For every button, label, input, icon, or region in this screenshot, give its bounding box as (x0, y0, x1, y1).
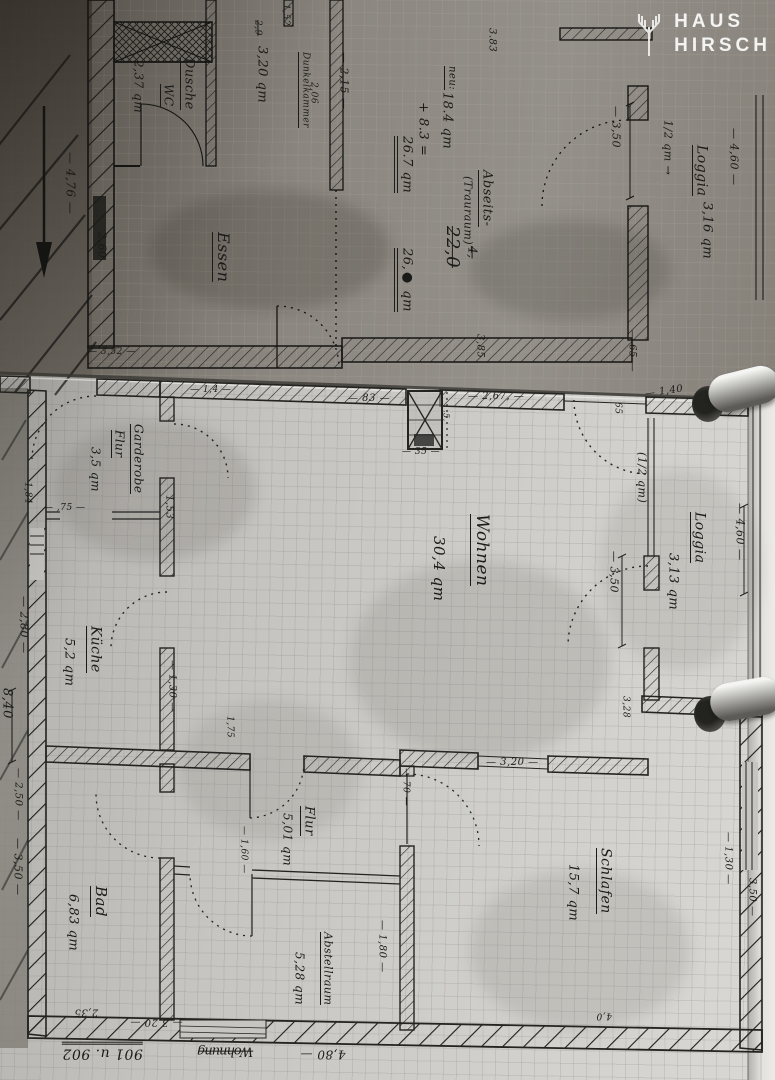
dim-label: — 70 — (400, 768, 409, 806)
dim-label: 3,28 (620, 696, 629, 718)
dim-label: — 3,50 (608, 551, 620, 593)
calc-value: + 8.3 = (416, 102, 430, 156)
calc-value: 18.4 qm (440, 92, 454, 149)
dim-label: — 3,50 (610, 106, 622, 148)
area-label-loggia-top: 3,16 qm (700, 202, 714, 259)
dim-label: — 1,80 — (376, 920, 387, 973)
ring-rod (704, 362, 775, 416)
calc-value-struck: 4, (466, 246, 479, 258)
area-label-bad: 6,83 qm (66, 894, 80, 951)
top-sheet-walls (0, 0, 763, 395)
dim-label: — 2,50 — (12, 768, 23, 821)
area-label-dunkelkammer: 3,20 qm (255, 46, 269, 103)
dim-label: — 1,4 — (190, 386, 232, 395)
dim-label: 65 (612, 402, 621, 414)
dim-label: 3,85 (474, 334, 485, 358)
dim-label: — 3,20 — (130, 1016, 183, 1027)
area-label-schlafen: 15,7 qm (566, 864, 580, 921)
dim-label: — ,75 — (44, 504, 86, 513)
calc-value-struck: 22,0 (442, 226, 461, 268)
dim-label: 2,60 (96, 232, 108, 259)
room-label-garderobe-flur: Flur (111, 430, 126, 458)
area-label-loggia: 3,13 qm (666, 553, 680, 610)
dim-label: — 1,60 — (238, 826, 247, 874)
dim-label: — 2,80 — (18, 596, 30, 654)
footer-dim: 4,80 — (300, 1048, 346, 1061)
dim-label: — 3,20 — (486, 758, 539, 769)
room-label-essen: Essen (212, 232, 231, 282)
calc-note: neu: (444, 66, 457, 90)
room-label-kueche: Küche (86, 626, 103, 673)
dim-label: 8,40 (0, 688, 14, 719)
dim-label: — 1,30 — (722, 832, 733, 885)
dim-label: — 35 — (402, 448, 440, 457)
room-label-abseits: Abseits- (478, 170, 494, 227)
area-label-wohnen: 30,4 qm (430, 536, 446, 602)
dim-label: — 1,30 — (166, 660, 177, 713)
room-label-bad: Bad (90, 886, 108, 917)
dim-label: — 65 — (626, 330, 637, 372)
note-half-qm: (1/2 qm) (636, 452, 648, 503)
room-label-garderobe: Garderobe (130, 424, 145, 494)
logo-line2: HIRSCH (674, 34, 771, 58)
room-label-abstellraum: Abstellraum (320, 932, 334, 1005)
dim-label: 1,53 (163, 495, 174, 519)
haus-hirsch-logo: HAUS HIRSCH (632, 10, 771, 58)
area-label-kueche: 5,2 qm (62, 638, 76, 686)
area-label-abstellraum: 5,28 qm (293, 952, 306, 1005)
room-label-loggia-top: Loggia (692, 145, 709, 196)
binder-ring (692, 366, 775, 428)
dim-label: 3.83 (486, 28, 497, 52)
area-label-dusche: 2,37 qm (132, 60, 145, 113)
binder-ring (694, 676, 775, 738)
dim-label: 1,84 (22, 482, 31, 504)
dim-label: 1,75 (224, 716, 233, 738)
dim-label: 3,50 — (746, 878, 757, 916)
dim-label: — 4,76 — (64, 152, 77, 214)
calc-result: 26.7 qm (394, 136, 414, 193)
logo-line1: HAUS (674, 10, 771, 34)
room-label-wohnen: Wohnen (470, 514, 490, 586)
dim-label: 1,52 (280, 4, 289, 26)
struck-value: 2,9 (252, 20, 261, 36)
dim-label: — 3,50 — (12, 838, 24, 896)
floorplan-photo: Dusche WC 2,37 qm 2,9 3,20 qm Dunkelkamm… (0, 0, 775, 1080)
dim-label: .5, (441, 410, 449, 422)
dim-label: — 2,15 — (338, 52, 350, 110)
room-label-wc: WC (160, 84, 175, 107)
dim-label: — 83 — (348, 394, 390, 405)
footer-scribble: Wohnung (198, 1044, 253, 1058)
ring-rod (707, 674, 775, 724)
floorplan-ink (0, 0, 775, 1080)
dim-label: — 4,60 — (734, 503, 746, 561)
dim-label: 4,0 (596, 1010, 612, 1019)
area-label-flur: 5,01 qm (281, 813, 294, 866)
room-sublabel-trauraum: (Trauraum) (462, 176, 474, 245)
room-label-dusche: Dusche (180, 58, 196, 110)
room-label-loggia: Loggia (690, 512, 707, 563)
deer-antler-icon (632, 11, 666, 57)
dim-label: 2,06 (308, 82, 317, 104)
area-label-garderobe: 3,5 qm (89, 447, 102, 492)
footer-apartment-number: 901 u. 902 (62, 1042, 143, 1061)
room-label-flur: Flur (300, 806, 316, 836)
room-label-schlafen: Schlafen (596, 848, 613, 914)
dim-label: — 4,60 — (728, 128, 740, 186)
calc-result: 26,● qm (394, 248, 414, 312)
dim-label: 2,35 (74, 1006, 98, 1017)
note-half-qm: 1/2 qm → (662, 120, 674, 175)
dim-label: — 2,67, — (468, 392, 524, 403)
dim-label: — 3,52 — (88, 348, 136, 357)
